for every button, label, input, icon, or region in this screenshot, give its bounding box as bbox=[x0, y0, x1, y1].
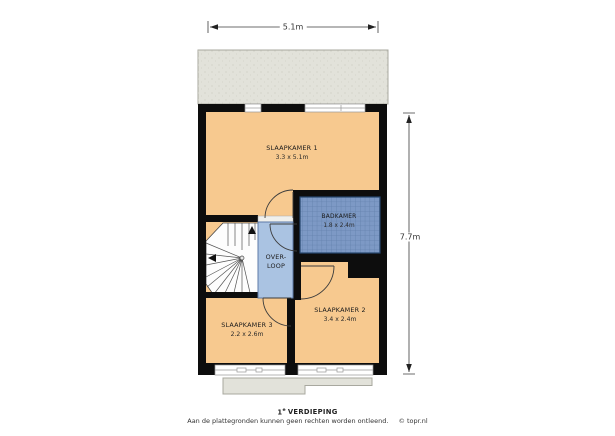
slaapkamer3-name: SLAAPKAMER 3 bbox=[221, 321, 272, 330]
dimension-height bbox=[403, 113, 415, 374]
room-label-overloop: OVER- LOOP bbox=[266, 253, 287, 271]
height-dimension-label: 7.7m bbox=[397, 233, 424, 242]
awning-area bbox=[223, 378, 372, 394]
overloop-name-line1: OVER- bbox=[266, 253, 287, 262]
window-bottom-left bbox=[215, 365, 285, 375]
badkamer-name: BADKAMER bbox=[322, 213, 357, 222]
slaapkamer1-name: SLAAPKAMER 1 bbox=[266, 144, 317, 153]
slaapkamer3-size: 2.2 x 2.6m bbox=[221, 330, 272, 339]
window-bottom-right bbox=[298, 365, 373, 375]
slaapkamer2-size: 3.4 x 2.4m bbox=[314, 315, 365, 324]
disclaimer-text: Aan de plattegronden kunnen geen rechten… bbox=[187, 417, 388, 425]
floor-number-suffix: e bbox=[282, 408, 285, 413]
staircase bbox=[206, 223, 258, 297]
room-label-slaapkamer2: SLAAPKAMER 2 3.4 x 2.4m bbox=[314, 306, 365, 324]
roof-area bbox=[198, 50, 388, 104]
credit-text: © topr.nl bbox=[398, 417, 427, 425]
window-top-left bbox=[245, 104, 261, 112]
overloop-name-line2: LOOP bbox=[266, 262, 287, 271]
floor-plan-drawing bbox=[0, 0, 615, 436]
floor-word: VERDIEPING bbox=[288, 408, 338, 416]
room-label-slaapkamer1: SLAAPKAMER 1 3.3 x 5.1m bbox=[266, 144, 317, 162]
window-top-right bbox=[305, 104, 365, 112]
footer-disclaimer-line: Aan de plattegronden kunnen geen rechten… bbox=[0, 417, 615, 425]
room-label-slaapkamer3: SLAAPKAMER 3 2.2 x 2.6m bbox=[221, 321, 272, 339]
badkamer-size: 1.8 x 2.4m bbox=[322, 222, 357, 231]
door-threshold bbox=[258, 216, 293, 222]
floor-title: 1eVERDIEPING bbox=[0, 408, 615, 416]
slaapkamer1-size: 3.3 x 5.1m bbox=[266, 153, 317, 162]
stair-newel bbox=[240, 256, 244, 260]
room-label-badkamer: BADKAMER 1.8 x 2.4m bbox=[322, 213, 357, 231]
width-dimension-label: 5.1m bbox=[280, 23, 307, 32]
floor-plan-page: 5.1m 7.7m SLAAPKAMER 1 3.3 x 5.1m BADKAM… bbox=[0, 0, 615, 436]
slaapkamer2-name: SLAAPKAMER 2 bbox=[314, 306, 365, 315]
footer: 1eVERDIEPING Aan de plattegronden kunnen… bbox=[0, 408, 615, 425]
